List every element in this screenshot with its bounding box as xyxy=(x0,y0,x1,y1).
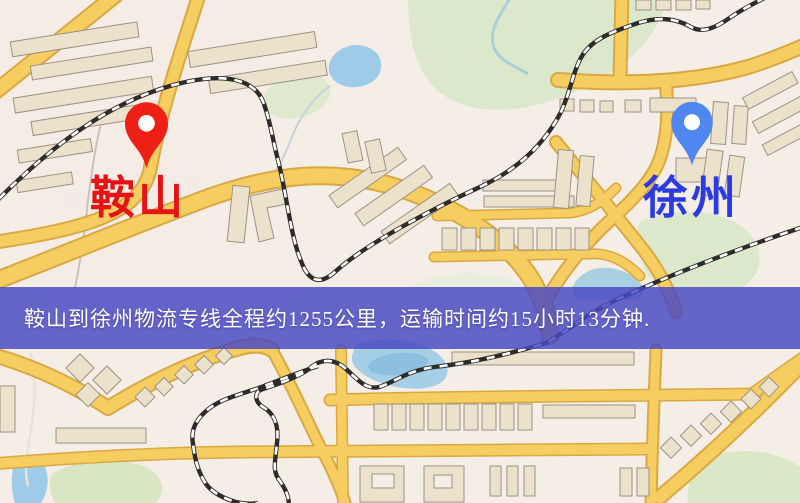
origin-label: 鞍山 xyxy=(90,176,186,221)
route-summary-text: 鞍山到徐州物流专线全程约1255公里，运输时间约15小时13分钟. xyxy=(24,303,650,333)
destination-label: 徐州 xyxy=(643,176,739,221)
map-screenshot: 鞍山 徐州 鞍山到徐州物流专线全程约1255公里，运输时间约15小时13分钟. xyxy=(0,0,800,503)
info-banner: 鞍山到徐州物流专线全程约1255公里，运输时间约15小时13分钟. xyxy=(0,287,800,349)
map-background xyxy=(0,0,800,503)
